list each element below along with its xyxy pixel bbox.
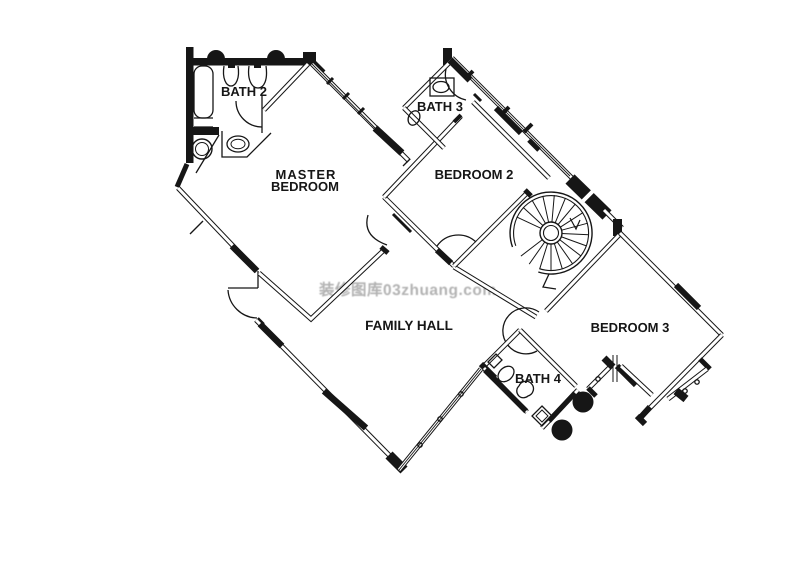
svg-text:FAMILY HALL: FAMILY HALL: [365, 318, 453, 333]
svg-text:BATH 2: BATH 2: [221, 84, 267, 99]
svg-text:BATH 3: BATH 3: [417, 99, 463, 114]
svg-text:BEDROOM: BEDROOM: [271, 179, 339, 194]
svg-text:BEDROOM 2: BEDROOM 2: [435, 167, 514, 182]
svg-text:BATH 4: BATH 4: [515, 371, 562, 386]
svg-text:BEDROOM 3: BEDROOM 3: [591, 320, 670, 335]
